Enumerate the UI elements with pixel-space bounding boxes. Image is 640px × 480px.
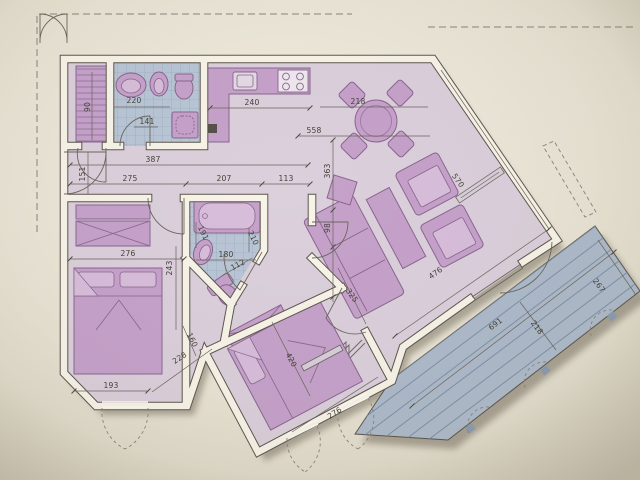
photo-vignette <box>0 0 640 480</box>
floor-plan-canvas: 90 220 141 240 387 151 275 207 113 558 3… <box>0 0 640 480</box>
floor-plan-photo: 90 220 141 240 387 151 275 207 113 558 3… <box>0 0 640 480</box>
